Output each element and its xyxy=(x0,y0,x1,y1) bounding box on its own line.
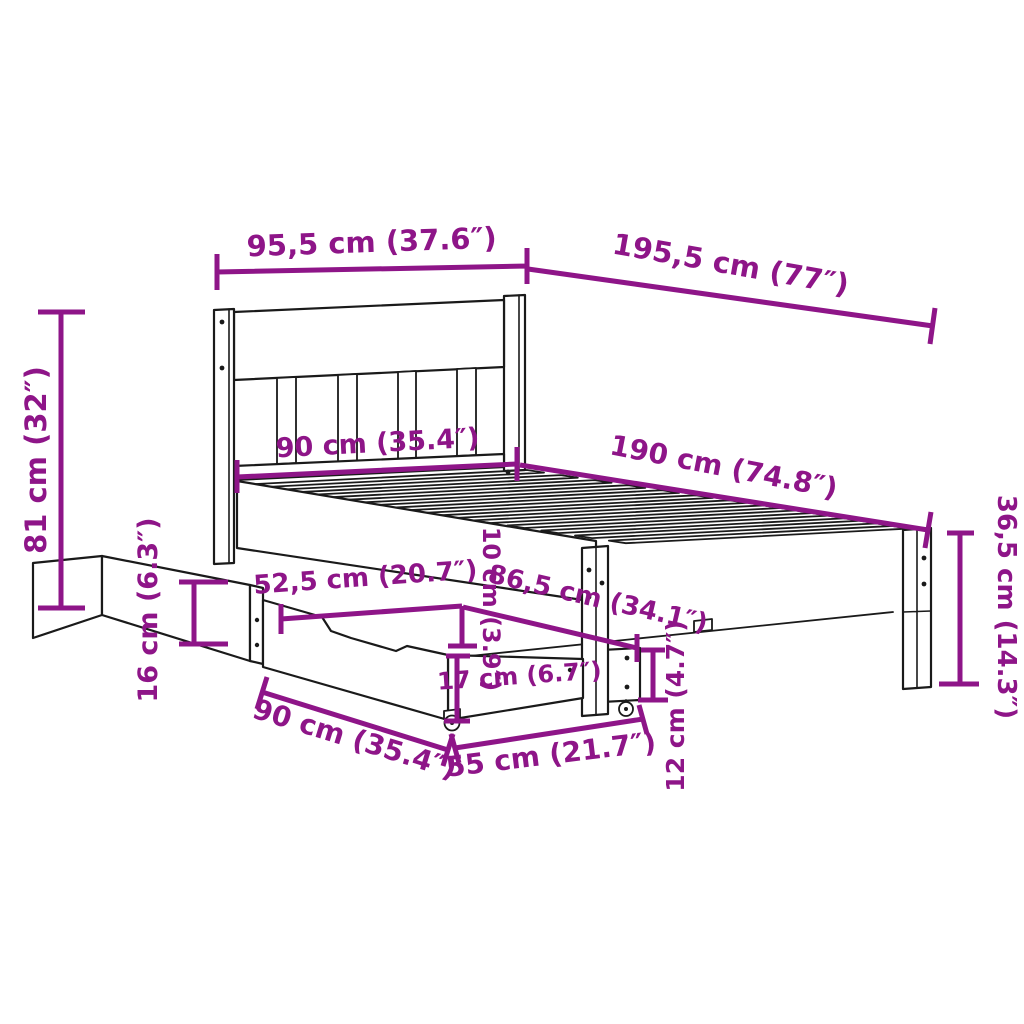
dim-headboard-width: 95,5 cm (37.6″) xyxy=(217,221,527,290)
bed-leg-near xyxy=(582,546,608,716)
headboard-post-left xyxy=(214,309,234,564)
bed-leg-far xyxy=(903,528,931,689)
dim-frame-length-overall: 195,5 cm (77″) xyxy=(528,227,935,344)
dim-foot-end-height: 36,5 cm (14.3″) xyxy=(939,495,1021,719)
dim-foot-end-height-label: 36,5 cm (14.3″) xyxy=(991,495,1021,719)
dim-headboard-height-label: 81 cm (32″) xyxy=(19,366,53,554)
dim-under-bed-drawer-height-label: 12 cm (4.7″) xyxy=(661,620,690,791)
bed-dimension-diagram: 95,5 cm (37.6″) 195,5 cm (77″) 81 cm (32… xyxy=(0,0,1024,1024)
dim-drawer-side-height-label: 16 cm (6.3″) xyxy=(133,517,164,702)
dim-drawer-depth-label: 52,5 cm (20.7″) xyxy=(253,555,479,601)
dim-headboard-width-label: 95,5 cm (37.6″) xyxy=(246,221,497,264)
dim-under-bed-drawer-height: 12 cm (4.7″) xyxy=(638,620,690,791)
headboard-post-right xyxy=(504,295,525,471)
dim-frame-length-overall-label: 195,5 cm (77″) xyxy=(610,227,851,302)
diagram-canvas: 95,5 cm (37.6″) 195,5 cm (77″) 81 cm (32… xyxy=(0,0,1024,1024)
drawer-left-side-panel xyxy=(33,556,102,638)
